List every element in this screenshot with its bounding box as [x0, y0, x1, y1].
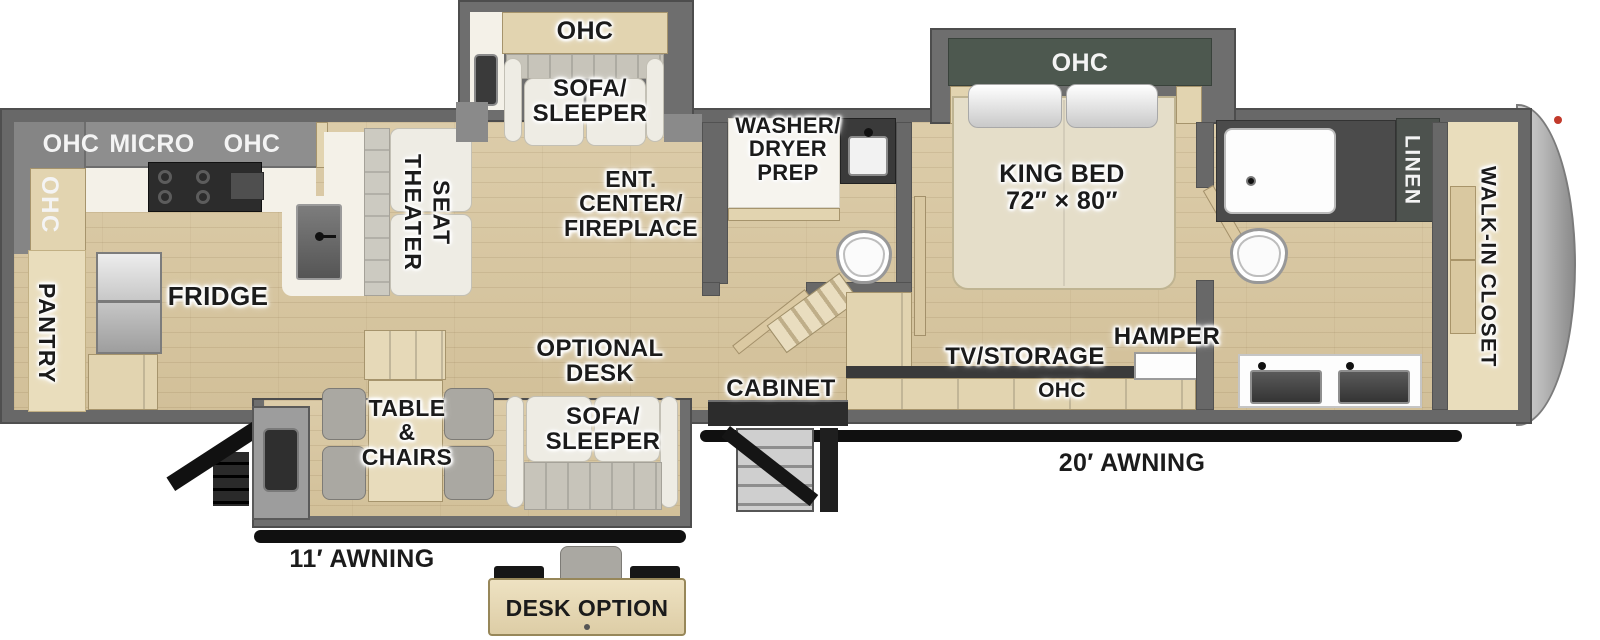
bed-shelf — [1176, 86, 1202, 124]
rv-floorplan: OHC OHC MICRO OHC PANTRY FRIDGE THEATER … — [0, 0, 1600, 640]
slide-window-icon — [474, 54, 498, 106]
label-console-ohc: OHC — [1022, 380, 1102, 402]
label-ent-center: ENT. CENTER/ FIREPLACE — [545, 167, 717, 240]
label-awning-rear: 11′ AWNING — [266, 546, 458, 573]
pocket-door — [914, 196, 926, 336]
sofa-back — [524, 462, 662, 510]
main-awning-rail — [700, 430, 1462, 442]
label-desk-option: DESK OPTION — [490, 596, 684, 620]
label-cabinet: CABINET — [706, 376, 856, 401]
label-tv-storage: TV/STORAGE — [935, 344, 1115, 369]
vanity-sink — [1338, 370, 1410, 404]
label-walk-in-closet: WALK-IN CLOSET — [1474, 142, 1518, 392]
label-linen: LINEN — [1398, 122, 1438, 218]
label-table-chairs: TABLE & CHAIRS — [348, 396, 466, 469]
shower-pan — [1224, 128, 1336, 214]
label-sofa-slide-ohc: OHC — [540, 18, 630, 45]
label-king-bed: KING BED 72″ × 80″ — [962, 161, 1162, 214]
burner-icon — [158, 190, 172, 204]
entry-door-panel — [820, 428, 838, 512]
clearance-light-icon — [1554, 116, 1562, 124]
pillow-icon — [1066, 84, 1158, 128]
faucet-icon — [1346, 362, 1354, 370]
tv-storage-console — [846, 378, 1196, 410]
label-optional-desk: OPTIONAL DESK — [516, 336, 684, 387]
burner-icon — [196, 170, 210, 184]
faucet-icon — [1258, 362, 1266, 370]
midbath-sink — [848, 136, 888, 176]
label-awning-main: 20′ AWNING — [1027, 450, 1237, 477]
midbath-cabinet — [728, 208, 840, 221]
label-ohc-top-2: OHC — [210, 131, 294, 158]
burner-icon — [158, 170, 172, 184]
entry-cabinet-counter — [708, 400, 848, 426]
toilet-icon — [836, 230, 892, 284]
label-micro: MICRO — [100, 131, 204, 158]
label-sofa-sleeper-lower: SOFA/ SLEEPER — [516, 404, 690, 455]
toilet-icon — [1230, 228, 1288, 284]
drawer-pull-icon — [584, 624, 590, 630]
shower-drain-icon — [1246, 176, 1256, 186]
slide-window-icon — [263, 428, 299, 492]
counter-appliance — [230, 172, 264, 200]
pillow-icon — [968, 84, 1062, 128]
label-hamper: HAMPER — [1104, 324, 1230, 349]
burner-icon — [196, 190, 210, 204]
midbath-wall-right — [896, 122, 912, 298]
closet-door-seam — [1450, 259, 1476, 261]
slide-opening-trim — [456, 102, 488, 142]
label-fridge: FRIDGE — [162, 283, 274, 311]
island-sink — [296, 204, 342, 280]
faucet-icon — [864, 128, 873, 137]
kitchen-lower-cabinet — [88, 354, 158, 410]
label-ohc-side: OHC — [34, 158, 78, 252]
label-bed-ohc: OHC — [1035, 50, 1125, 77]
frontbath-wall — [1196, 122, 1214, 188]
dining-hutch — [364, 330, 446, 380]
label-pantry: PANTRY — [32, 260, 82, 406]
rear-awning-rail — [254, 530, 686, 543]
fridge — [96, 252, 162, 354]
label-theater-seat: THEATER SEAT — [398, 150, 464, 276]
label-washer-dryer-prep: WASHER/ DRYER PREP — [722, 114, 854, 184]
bedroom-dresser — [846, 292, 912, 370]
theater-seat-back — [364, 128, 390, 296]
midbath-wall-bottom — [702, 282, 720, 296]
vanity-sink — [1250, 370, 1322, 404]
faucet-stem — [322, 235, 336, 238]
label-sofa-sleeper-top: SOFA/ SLEEPER — [503, 76, 677, 127]
fridge-door-seam — [96, 300, 162, 303]
